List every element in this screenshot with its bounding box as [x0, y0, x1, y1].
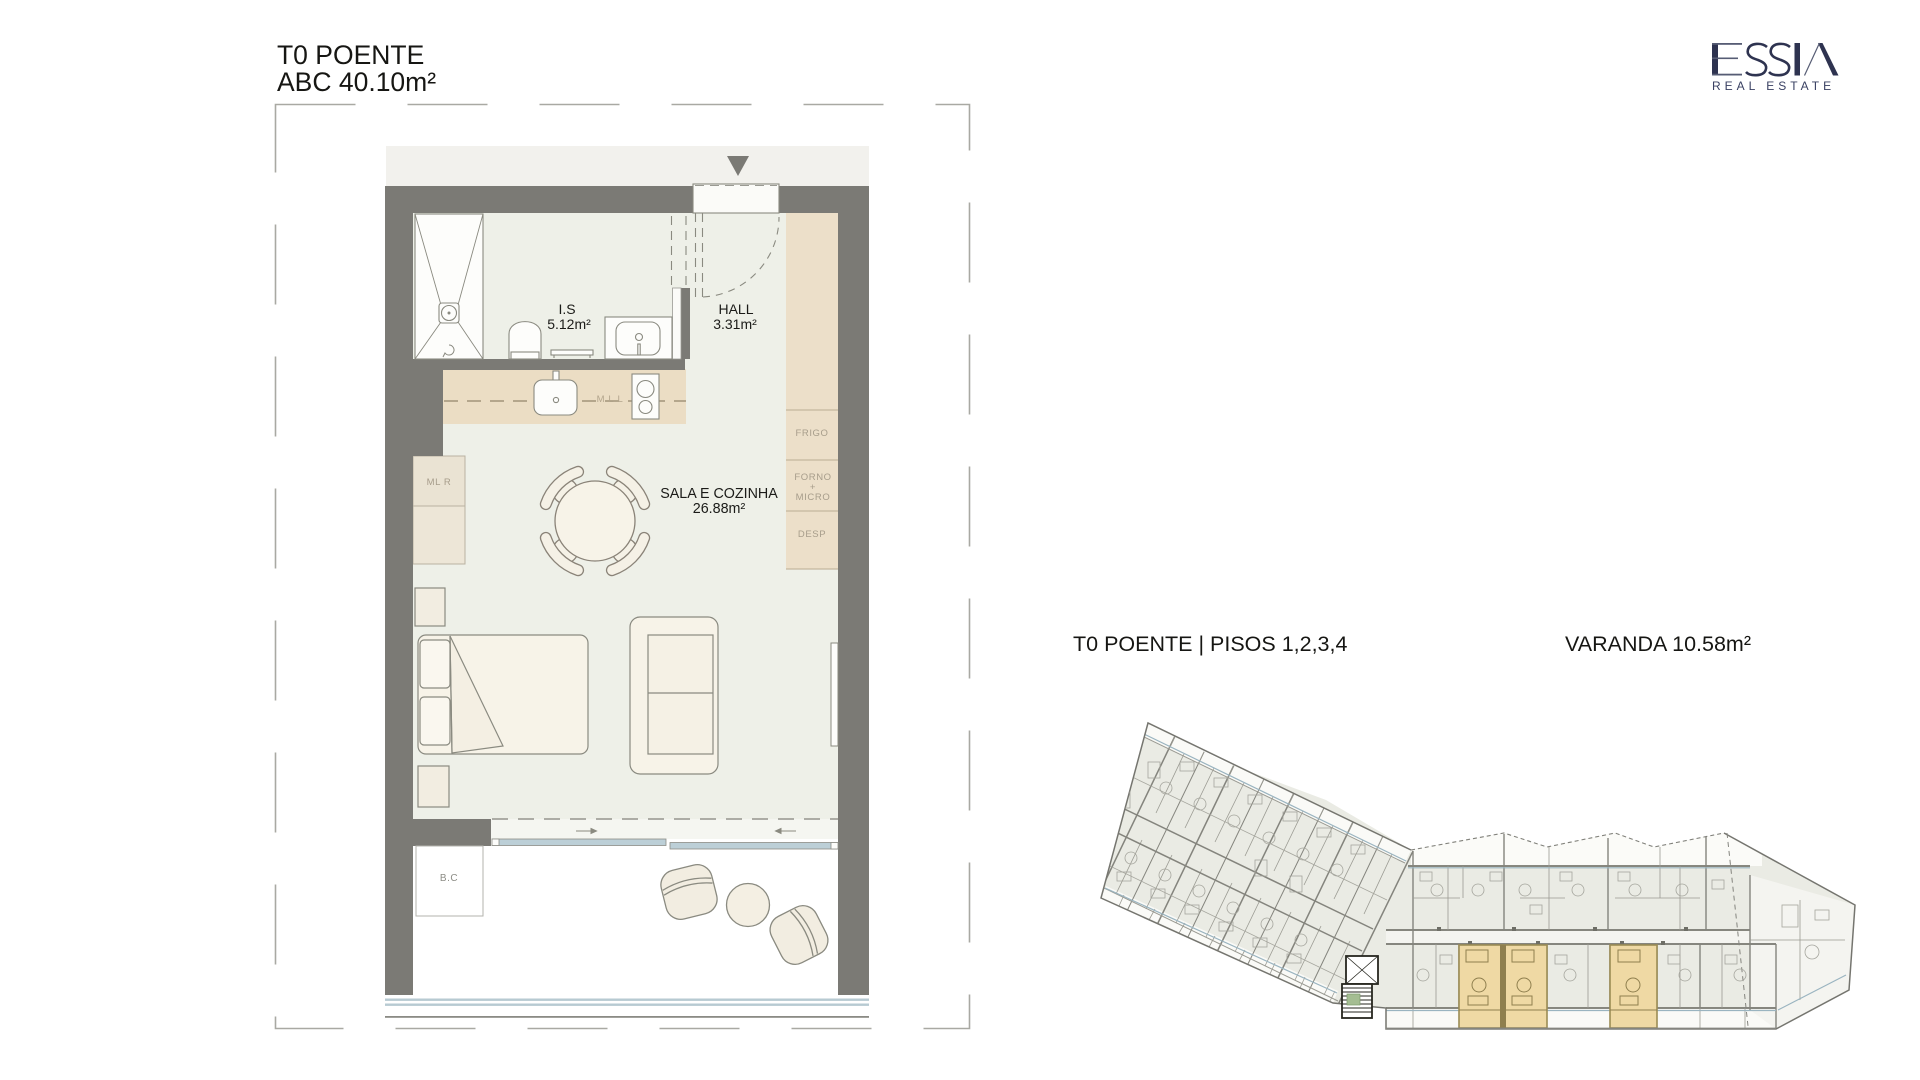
svg-text:ML R: ML R	[427, 477, 452, 488]
svg-text:5.12m²: 5.12m²	[547, 316, 591, 332]
svg-text:MICRO: MICRO	[796, 492, 831, 503]
svg-text:HALL: HALL	[718, 301, 753, 317]
svg-text:I.S: I.S	[558, 301, 575, 317]
svg-text:REAL ESTATE: REAL ESTATE	[1712, 79, 1835, 93]
svg-text:VARANDA 10.58m²: VARANDA 10.58m²	[1565, 632, 1751, 656]
svg-text:SALA E COZINHA: SALA E COZINHA	[660, 486, 778, 502]
svg-text:T0 POENTE | PISOS 1,2,3,4: T0 POENTE | PISOS 1,2,3,4	[1073, 632, 1347, 656]
svg-text:ABC 40.10m²: ABC 40.10m²	[277, 67, 436, 97]
svg-text:FRIGO: FRIGO	[795, 428, 828, 439]
svg-text:B.C: B.C	[440, 873, 458, 884]
svg-text:26.88m²: 26.88m²	[693, 501, 746, 517]
svg-text:T0 POENTE: T0 POENTE	[277, 40, 424, 70]
svg-text:M.L.L: M.L.L	[597, 394, 624, 405]
svg-text:3.31m²: 3.31m²	[713, 316, 757, 332]
svg-text:DESP: DESP	[798, 529, 826, 540]
